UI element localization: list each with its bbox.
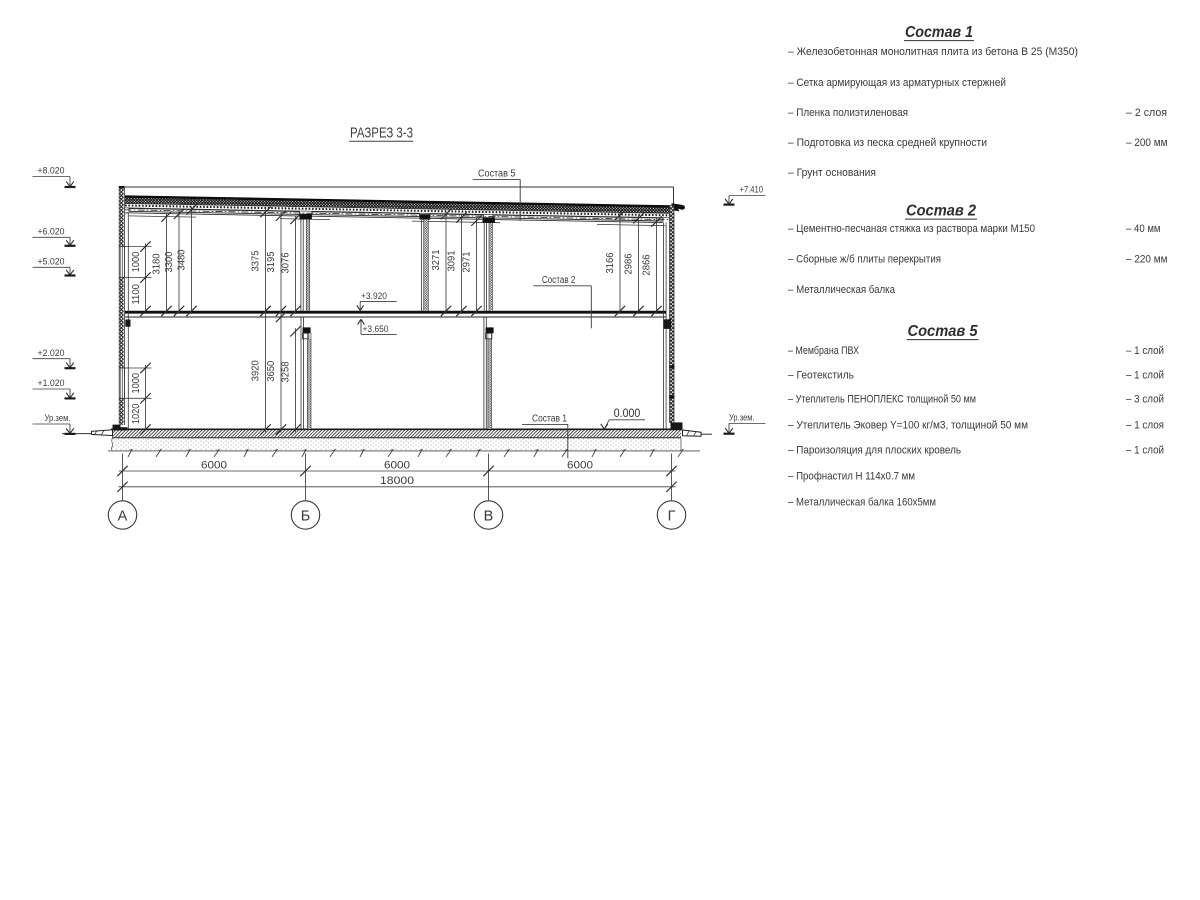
svg-text:1020: 1020 [131,403,142,424]
svg-text:Ур.зем.: Ур.зем. [45,413,71,424]
svg-text:Состав 1: Состав 1 [532,413,567,424]
svg-text:– Сборные ж/б плиты перекрыти: – Сборные ж/б плиты перекрытия [788,254,941,266]
svg-text:3180: 3180 [152,253,163,274]
svg-text:– Пленка полиэтиленовая: – Пленка полиэтиленовая [788,107,908,119]
svg-text:+2.020: +2.020 [38,348,65,359]
svg-text:– Утеплитель Эковер Y=100 кг/: – Утеплитель Эковер Y=100 кг/м3, толщино… [788,420,1028,432]
svg-text:– Металлическая балка 160х5мм: – Металлическая балка 160х5мм [788,497,936,509]
svg-text:6000: 6000 [384,459,410,471]
svg-text:– Железобетонная монолитная: – Железобетонная монолитная плита из бет… [788,46,1078,58]
svg-text:18000: 18000 [380,475,414,487]
svg-text:Состав 1: Состав 1 [905,24,973,41]
svg-text:– Утеплитель ПЕНОПЛЕКС толщин: – Утеплитель ПЕНОПЛЕКС толщиной 50 мм [788,394,976,406]
svg-text:Ур.зем.: Ур.зем. [729,413,755,424]
svg-text:– 1 слоя: – 1 слоя [1126,420,1164,432]
svg-text:РАЗРЕЗ 3-3: РАЗРЕЗ 3-3 [350,125,413,142]
svg-text:3920: 3920 [251,360,262,381]
svg-text:1000: 1000 [131,373,142,394]
svg-text:0.000: 0.000 [614,408,641,420]
svg-text:Состав 2: Состав 2 [906,203,976,220]
svg-text:6000: 6000 [567,459,593,471]
svg-text:+5.020: +5.020 [38,257,65,268]
svg-text:+3.650: +3.650 [363,324,389,335]
svg-text:– 2 слоя: – 2 слоя [1126,107,1167,119]
svg-text:2986: 2986 [624,253,635,274]
svg-text:– Мембрана ПВХ: – Мембрана ПВХ [788,345,860,357]
svg-text:А: А [118,508,128,524]
svg-text:– 1 слой: – 1 слой [1126,445,1164,457]
svg-text:+1.020: +1.020 [38,378,65,389]
svg-text:3091: 3091 [447,250,458,271]
svg-text:3166: 3166 [605,252,616,273]
svg-text:3258: 3258 [281,361,292,382]
svg-text:– 220 мм: – 220 мм [1126,254,1168,266]
svg-text:+6.020: +6.020 [38,227,65,238]
svg-text:– 200 мм: – 200 мм [1126,137,1168,149]
svg-text:– Пароизоляция для плоских кр: – Пароизоляция для плоских кровель [788,445,961,457]
svg-text:+3.920: +3.920 [361,291,387,302]
svg-text:1100: 1100 [131,284,142,305]
svg-text:– 40 мм: – 40 мм [1126,223,1161,235]
svg-text:3195: 3195 [266,251,277,272]
svg-text:– Подготовка из песка средней: – Подготовка из песка средней крупности [788,137,987,149]
svg-text:6000: 6000 [201,459,227,471]
svg-text:Г: Г [668,508,676,524]
svg-text:– Цементно-песчаная стяжка из: – Цементно-песчаная стяжка из раствора м… [788,223,1035,235]
svg-text:– Профнастил Н 114х0.7 мм: – Профнастил Н 114х0.7 мм [788,471,915,483]
svg-text:3480: 3480 [177,249,188,270]
svg-text:В: В [484,508,494,524]
svg-text:3375: 3375 [251,250,262,271]
svg-text:3300: 3300 [164,251,175,272]
svg-text:+8.020: +8.020 [38,166,65,177]
svg-text:Состав 5: Состав 5 [908,323,978,340]
svg-text:– Сетка армирующая из арматур: – Сетка армирующая из арматурных стержне… [788,77,1006,89]
svg-text:– Геотекстиль: – Геотекстиль [788,370,854,382]
svg-text:– 3 слой: – 3 слой [1126,394,1164,406]
svg-text:Состав 5: Состав 5 [478,168,516,179]
svg-text:– 1 слой: – 1 слой [1126,345,1164,357]
svg-text:2866: 2866 [642,254,653,275]
svg-text:Б: Б [301,508,311,524]
svg-text:1000: 1000 [131,251,142,272]
svg-text:– Грунт основания: – Грунт основания [788,167,876,179]
svg-text:2971: 2971 [462,251,473,272]
svg-text:Состав 2: Состав 2 [542,275,576,286]
svg-text:3271: 3271 [431,249,442,270]
svg-text:3076: 3076 [281,252,292,273]
svg-text:– 1 слой: – 1 слой [1126,370,1164,382]
svg-text:3650: 3650 [266,360,277,381]
svg-text:+7.410: +7.410 [740,185,764,196]
svg-text:– Металлическая балка: – Металлическая балка [788,284,896,296]
